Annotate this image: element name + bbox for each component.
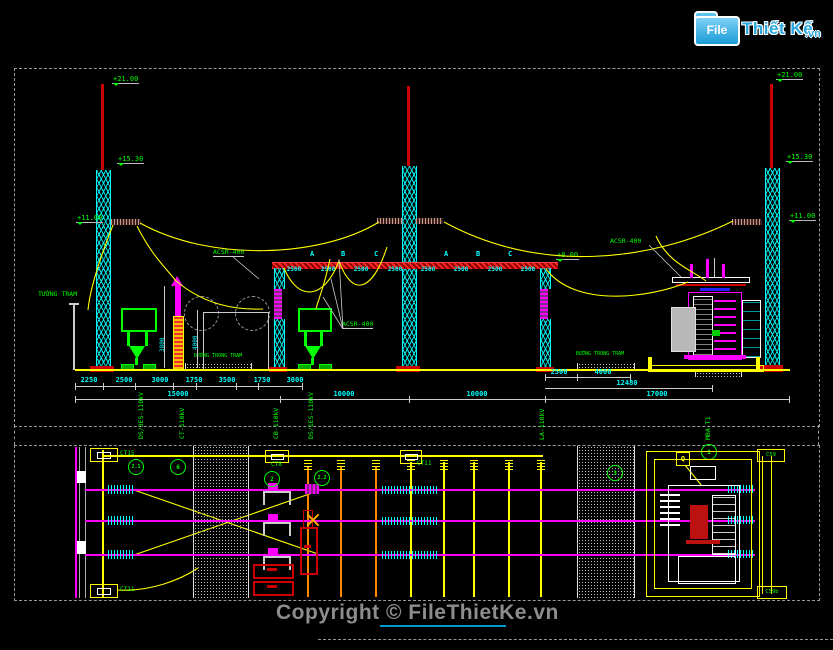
dimension: 10000 (324, 391, 364, 398)
dim-tick (258, 383, 259, 390)
logo-file-text: File (707, 23, 728, 37)
dim-tick (409, 396, 410, 403)
lightning-rod-right (770, 84, 773, 168)
level-flag-icon (790, 220, 796, 226)
drop-line (410, 462, 412, 597)
folder-icon: File (694, 16, 740, 46)
transformer-ladder (742, 300, 761, 358)
transformer-top-beam (672, 277, 750, 283)
dimension: 2500 (483, 267, 507, 273)
dimension: 2250 (74, 377, 104, 384)
gantry-column-right (540, 268, 551, 289)
dim-line-vertical (164, 286, 165, 368)
dimension: 2500 (449, 267, 473, 273)
post-insulator (274, 289, 282, 319)
dimension: 2500 (349, 267, 373, 273)
road-label: ĐƯỜNG TRONG TRẠM (576, 352, 624, 357)
dim-line (75, 399, 790, 400)
disconnector-frame (121, 308, 157, 332)
transformer-radiator (671, 307, 696, 352)
wall-post (77, 471, 86, 483)
dimension: 2500 (316, 267, 340, 273)
insulator-hatch (382, 551, 438, 559)
dim-tick (103, 383, 104, 390)
breaker-pole (268, 548, 278, 554)
transformer-skid (684, 355, 746, 359)
right-riser (762, 456, 772, 594)
drop-insulator (505, 458, 513, 470)
transformer-plan-base (678, 556, 736, 584)
bay-header: CT-110kV (179, 408, 186, 439)
drop-insulator (372, 458, 380, 470)
bay-header: MBA-T1 (705, 417, 712, 440)
dim-tick (75, 396, 76, 403)
dimension: 15000 (158, 391, 198, 398)
logo-name-text: Thiết Kế (742, 19, 813, 39)
level-flag-icon (777, 79, 783, 85)
drop-insulator (537, 458, 545, 470)
transformer-core (693, 296, 713, 356)
drop-insulator (337, 458, 345, 470)
dim-tick (577, 374, 578, 381)
disconnector-leg (145, 330, 148, 346)
foundation-pad (695, 372, 742, 377)
gantry-column-right-lower (540, 319, 551, 367)
insulator-hatch (108, 550, 134, 559)
wall-double-line (79, 447, 86, 598)
transformer-windings (714, 300, 736, 350)
drop-insulator (407, 458, 415, 470)
disconnector-frame (298, 308, 332, 332)
transformer-plan-fins (712, 495, 736, 555)
disconnector-stem (135, 358, 138, 365)
foundation-red-mark (267, 568, 277, 571)
conductor-label: ACSR-400 (342, 321, 373, 329)
dim-line (545, 377, 630, 378)
road-label: ĐƯỜNG TRONG TRẠM (194, 354, 242, 359)
drop-line (340, 466, 342, 597)
transformer-red-rail (676, 284, 746, 286)
level-flag-icon (118, 163, 124, 169)
plan-bus-line (103, 455, 543, 457)
elevation-label: +8.00 (556, 252, 579, 260)
feeder-line (102, 450, 104, 598)
balloon-callout: 2.1 (128, 459, 144, 475)
foundation-symbol (97, 588, 111, 595)
frame-connector-right (818, 425, 819, 445)
ct-symbol (271, 454, 284, 460)
dimension: 2500 (282, 267, 306, 273)
phase-label: C (508, 251, 512, 258)
elevation-label: +15.30 (117, 156, 144, 164)
transformer-plan-conservator (690, 466, 716, 480)
dim-line (75, 386, 303, 387)
dim-tick (75, 383, 76, 390)
bay-header: DS/3ES-110kV (138, 392, 145, 439)
bay-header: DS/1ES-110kV (308, 392, 315, 439)
foundation-tag: CT11 (120, 587, 134, 593)
phase-label: B (476, 251, 480, 258)
logo-tld-text: .vn (805, 28, 821, 40)
transformer-plan-radiator (660, 490, 680, 526)
breaker-support (263, 522, 291, 536)
foundation-red-mark (267, 585, 277, 588)
ct-tag: CT8 (271, 462, 282, 468)
dimension: 2500 (383, 267, 407, 273)
dimension: 17000 (637, 391, 677, 398)
post-insulator (540, 289, 548, 319)
dim-tick (302, 383, 303, 390)
dimension: 1750 (179, 377, 209, 384)
level-flag-icon (113, 83, 119, 89)
lattice-tower-right (765, 168, 780, 366)
conductor-label: ACSR-400 (610, 238, 641, 245)
bay-header: LA-110kV (539, 409, 546, 440)
drop-insulator (440, 458, 448, 470)
ground-line (75, 369, 790, 371)
drop-line (443, 462, 445, 597)
drop-line (508, 462, 510, 597)
foundation-red (253, 564, 294, 579)
level-flag-icon (77, 222, 83, 228)
drop-insulator (470, 458, 478, 470)
dimension: 4000 (589, 369, 617, 376)
drop-line (375, 466, 377, 597)
transformer-blue-bar (700, 288, 730, 291)
insulator-string (416, 218, 443, 224)
dimension: 2500 (416, 267, 440, 273)
dimension: 1750 (247, 377, 277, 384)
phase-label: C (374, 251, 378, 258)
insulator-string (377, 218, 403, 224)
insulator-string (732, 219, 762, 225)
transformer-mast (714, 258, 715, 278)
elevation-label: +11.00 (76, 215, 103, 223)
phase-label: A (310, 251, 314, 258)
foundation-box-ct11 (90, 584, 118, 598)
dim-tick (236, 383, 237, 390)
balloon-callout: 3 (607, 465, 623, 481)
road-band (577, 446, 635, 598)
riser-tag-bottom: C59b (757, 586, 787, 599)
elevation-label: +21.00 (112, 76, 139, 84)
riser-tag-top: C59 (757, 449, 785, 462)
disconnector-leg (127, 330, 130, 346)
dim-line (545, 388, 712, 389)
drop-line (473, 462, 475, 597)
breaker-red-mark (304, 545, 311, 548)
drop-insulator (304, 458, 312, 470)
dim-tick (280, 396, 281, 403)
dimension: 2500 (109, 377, 139, 384)
watermark-underline (380, 625, 506, 627)
dimension-vertical: 3800 (160, 338, 166, 352)
breaker-pole (268, 514, 278, 520)
dimension: 2500 (545, 369, 573, 376)
switch-symbol (305, 484, 319, 494)
arrester-body (175, 286, 181, 316)
dimension-vertical: 4000 (193, 336, 199, 350)
insulator-hatch (382, 517, 438, 525)
road-band (193, 446, 249, 598)
transformer-plan-core (690, 505, 708, 539)
wall-post (77, 541, 86, 554)
arrester-cap (171, 276, 183, 286)
transformer-bushing (722, 264, 725, 278)
breaker-support (263, 491, 291, 505)
copyright-watermark[interactable]: Copyright © FileThietKe.vn (276, 601, 559, 625)
lightning-rod-middle (407, 86, 410, 166)
dim-tick (196, 383, 197, 390)
lightning-rod-left (101, 84, 104, 170)
insulator-hatch (108, 485, 134, 494)
station-wall (73, 303, 75, 370)
dim-tick (545, 396, 546, 403)
frame-connector-left (14, 425, 15, 445)
brand-logo[interactable]: File Thiết Kế .vn (692, 8, 828, 50)
insulator-string (111, 219, 141, 225)
drop-line (540, 462, 542, 597)
dimension: 3000 (145, 377, 175, 384)
dimension: 10000 (457, 391, 497, 398)
insulator-hatch (382, 486, 438, 494)
transformer-plan-bar (686, 540, 720, 544)
cad-drawing-viewport: File Thiết Kế .vn +21.00 +15.30 +11.00 +… (0, 0, 833, 650)
transformer-bushing (690, 264, 693, 278)
dim-tick (173, 383, 174, 390)
balloon-callout: 6 (170, 459, 186, 475)
equipment-frame (203, 312, 269, 370)
dimension: 12480 (607, 380, 647, 387)
sheet-border-bottom (318, 639, 833, 640)
station-wall-cap (69, 303, 79, 305)
transformer-valve (712, 330, 720, 336)
station-wall-label: TƯỜNG TRẠM (38, 291, 77, 298)
ct-tag: CT11 (417, 461, 431, 467)
phase-label: A (444, 251, 448, 258)
dim-tick (712, 385, 713, 392)
elevation-label: +21.00 (776, 72, 803, 80)
conductor-label: ACSR-400 (213, 249, 244, 257)
elevation-label: +11.00 (789, 213, 816, 221)
gantry-column-left-lower (274, 319, 285, 367)
level-flag-icon (787, 161, 793, 167)
balloon-callout: 2 (264, 471, 280, 487)
dimension: 2500 (516, 267, 540, 273)
balloon-callout: 2.2 (314, 470, 330, 486)
disconnector-leg (320, 330, 323, 346)
disconnector-leg (304, 330, 307, 346)
support-column-hatched (173, 316, 184, 370)
dimension: 3500 (212, 377, 242, 384)
wall-line-magenta (75, 447, 77, 598)
breaker-red-body (300, 527, 318, 575)
dim-tick (135, 383, 136, 390)
bay-header: CB-110kV (273, 408, 280, 439)
insulator-hatch (108, 516, 134, 525)
disconnector-stem (311, 358, 314, 365)
foundation-red (253, 581, 294, 596)
dimension: 3000 (280, 377, 310, 384)
transformer-bushing (706, 259, 709, 278)
elevation-label: +15.30 (786, 154, 813, 162)
phase-label: B (341, 251, 345, 258)
lattice-tower-left (96, 170, 111, 368)
dim-tick (789, 396, 790, 403)
